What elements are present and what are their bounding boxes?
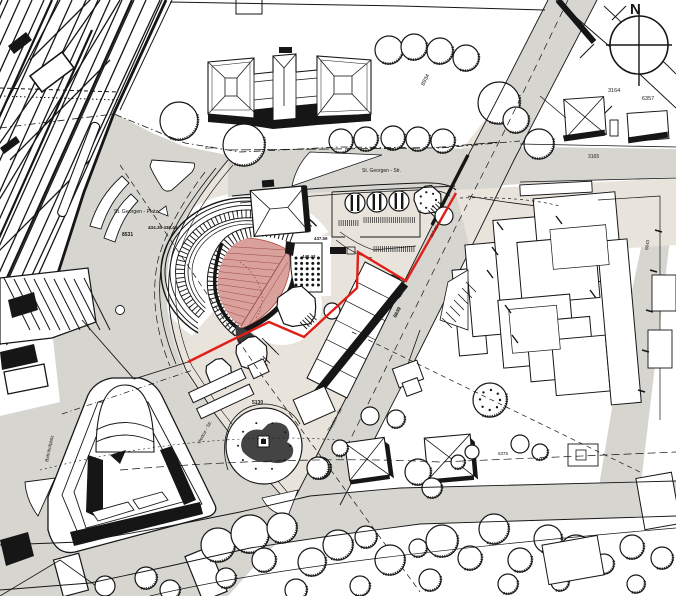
svg-text:8499: 8499 <box>205 146 213 150</box>
svg-text:3164: 3164 <box>608 88 620 94</box>
svg-text:437.59: 437.59 <box>314 236 328 241</box>
svg-text:5130: 5130 <box>252 400 263 406</box>
svg-text:440.43: 440.43 <box>302 254 316 259</box>
svg-text:St. Georgen - Str.: St. Georgen - Str. <box>362 168 401 174</box>
svg-text:N: N <box>630 1 641 18</box>
svg-text:6357: 6357 <box>642 96 654 102</box>
svg-text:8531: 8531 <box>122 232 133 238</box>
svg-text:5375: 5375 <box>498 451 509 456</box>
svg-text:3165: 3165 <box>588 154 599 160</box>
svg-text:434.30 436.43: 434.30 436.43 <box>148 225 178 230</box>
svg-text:St. Georgen - Platz: St. Georgen - Platz <box>114 209 159 215</box>
